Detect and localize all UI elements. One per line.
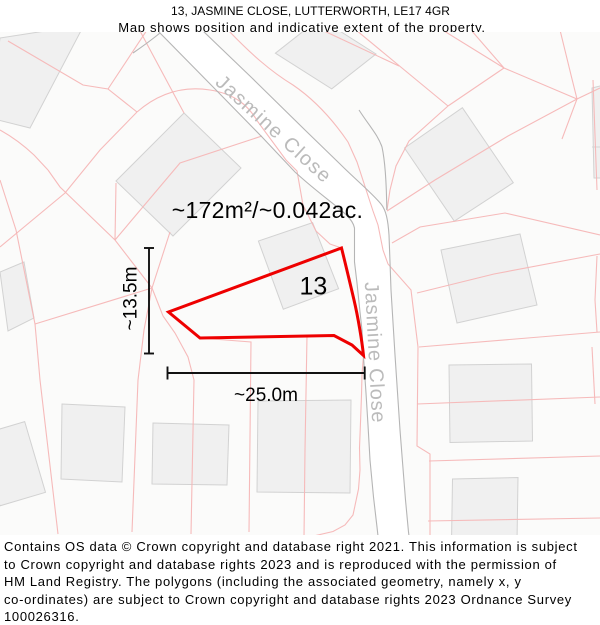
svg-text:13: 13 — [299, 273, 327, 301]
svg-text:~13.5m: ~13.5m — [121, 267, 142, 331]
svg-text:~172m²/~0.042ac.: ~172m²/~0.042ac. — [172, 197, 363, 223]
svg-text:~25.0m: ~25.0m — [234, 385, 298, 406]
